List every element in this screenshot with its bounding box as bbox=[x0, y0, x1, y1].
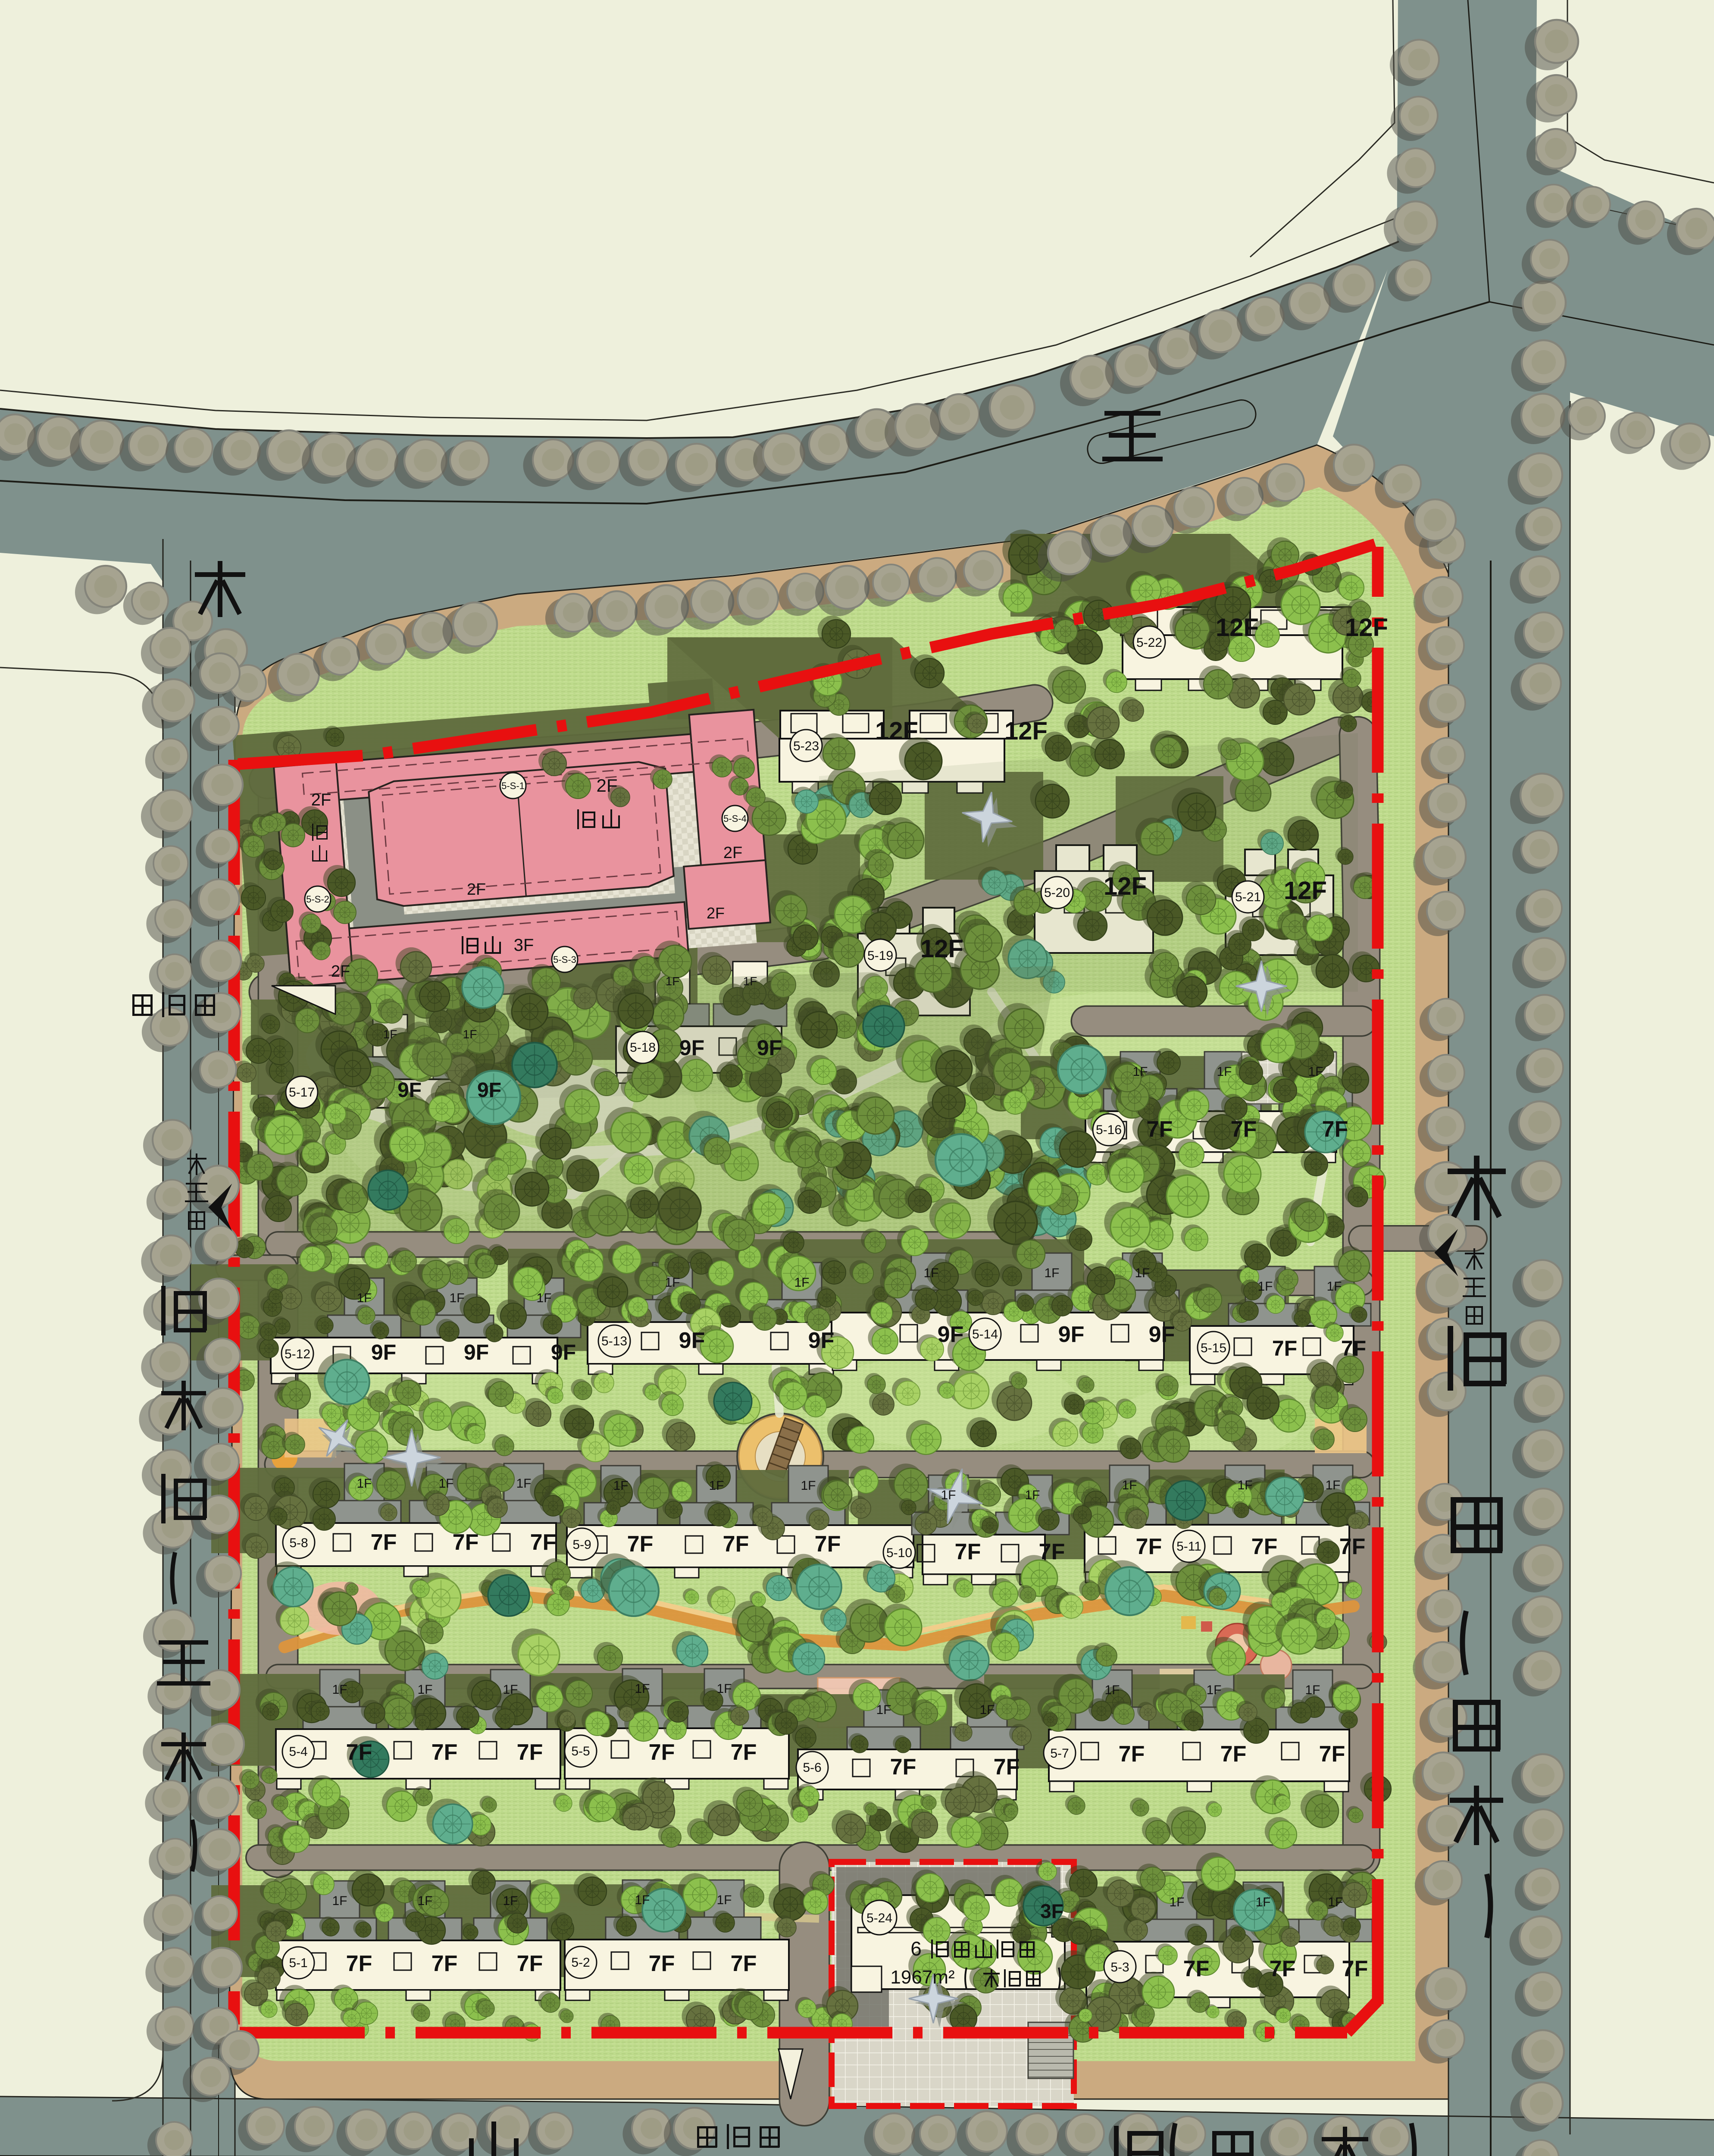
svg-text:7F: 7F bbox=[432, 1951, 458, 1976]
svg-text:12F: 12F bbox=[1345, 614, 1388, 642]
svg-text:1F: 1F bbox=[794, 1275, 809, 1290]
svg-text:1F: 1F bbox=[503, 1894, 518, 1908]
svg-text:5-7: 5-7 bbox=[1050, 1746, 1069, 1761]
svg-text:1967m²: 1967m² bbox=[890, 1967, 954, 1988]
svg-text:1F: 1F bbox=[383, 1028, 397, 1041]
svg-text:7F: 7F bbox=[1136, 1534, 1162, 1559]
svg-text:7F: 7F bbox=[1319, 1742, 1345, 1767]
svg-text:7F: 7F bbox=[649, 1951, 675, 1976]
svg-text:7F: 7F bbox=[994, 1755, 1020, 1780]
svg-text:12F: 12F bbox=[875, 717, 918, 745]
svg-text:12F: 12F bbox=[1104, 872, 1147, 900]
svg-text:5-18: 5-18 bbox=[630, 1040, 656, 1055]
svg-text:5-S-2: 5-S-2 bbox=[306, 894, 329, 905]
svg-text:9F: 9F bbox=[1058, 1322, 1085, 1347]
svg-text:7F: 7F bbox=[346, 1951, 372, 1976]
svg-text:2F: 2F bbox=[723, 844, 742, 862]
svg-text:5-2: 5-2 bbox=[571, 1955, 590, 1970]
svg-text:9F: 9F bbox=[371, 1340, 396, 1364]
svg-text:7F: 7F bbox=[1341, 1336, 1366, 1360]
svg-text:7F: 7F bbox=[1039, 1539, 1065, 1564]
svg-text:2F: 2F bbox=[467, 881, 486, 899]
svg-text:1F: 1F bbox=[801, 1479, 816, 1493]
svg-text:7F: 7F bbox=[815, 1532, 841, 1557]
svg-text:7F: 7F bbox=[1251, 1534, 1278, 1559]
svg-text:1F: 1F bbox=[516, 1476, 531, 1491]
svg-text:1F: 1F bbox=[665, 1275, 680, 1290]
svg-text:1F: 1F bbox=[1305, 1683, 1320, 1697]
svg-text:5-13: 5-13 bbox=[601, 1334, 627, 1348]
svg-text:1F: 1F bbox=[1255, 1895, 1270, 1909]
svg-text:9F: 9F bbox=[679, 1328, 705, 1353]
svg-text:2F: 2F bbox=[707, 904, 725, 922]
svg-text:7F: 7F bbox=[1339, 1534, 1366, 1559]
svg-text:7F: 7F bbox=[517, 1740, 543, 1765]
svg-text:7F: 7F bbox=[1119, 1742, 1145, 1767]
svg-text:1F: 1F bbox=[1326, 1279, 1342, 1294]
svg-text:1F: 1F bbox=[1135, 1266, 1150, 1280]
svg-text:1F: 1F bbox=[357, 1476, 372, 1491]
svg-text:1F: 1F bbox=[1169, 1895, 1184, 1909]
svg-text:5-17: 5-17 bbox=[289, 1085, 315, 1100]
svg-text:1F: 1F bbox=[503, 1683, 518, 1697]
svg-text:1F: 1F bbox=[1206, 1683, 1221, 1697]
svg-text:7F: 7F bbox=[1322, 1117, 1348, 1142]
svg-text:9F: 9F bbox=[477, 1079, 501, 1102]
svg-text:5-4: 5-4 bbox=[289, 1745, 307, 1759]
svg-text:3F: 3F bbox=[1040, 1900, 1063, 1922]
svg-text:5-S-3: 5-S-3 bbox=[553, 954, 576, 965]
svg-text:5-S-1: 5-S-1 bbox=[501, 780, 525, 791]
svg-text:1F: 1F bbox=[536, 1291, 551, 1305]
svg-text:9F: 9F bbox=[1149, 1322, 1175, 1347]
svg-text:5-5: 5-5 bbox=[571, 1744, 590, 1758]
svg-text:7F: 7F bbox=[1183, 1956, 1210, 1981]
svg-text:1F: 1F bbox=[1237, 1478, 1252, 1492]
svg-text:5-23: 5-23 bbox=[793, 739, 819, 753]
svg-text:1F: 1F bbox=[666, 975, 680, 988]
svg-text:1F: 1F bbox=[1257, 1279, 1273, 1294]
svg-text:1F: 1F bbox=[1217, 1065, 1232, 1079]
svg-text:5-19: 5-19 bbox=[867, 949, 893, 963]
svg-text:9F: 9F bbox=[464, 1340, 489, 1364]
svg-text:7F: 7F bbox=[731, 1951, 757, 1976]
svg-text:5-6: 5-6 bbox=[803, 1761, 821, 1775]
svg-text:1F: 1F bbox=[716, 1682, 732, 1696]
svg-text:1F: 1F bbox=[449, 1291, 464, 1305]
svg-text:7F: 7F bbox=[955, 1539, 981, 1564]
svg-text:7F: 7F bbox=[1342, 1956, 1368, 1981]
svg-text:1F: 1F bbox=[1325, 1478, 1340, 1492]
svg-text:9F: 9F bbox=[551, 1340, 576, 1364]
svg-text:1F: 1F bbox=[941, 1488, 956, 1502]
svg-text:5-10: 5-10 bbox=[886, 1546, 912, 1560]
svg-text:7F: 7F bbox=[731, 1740, 757, 1765]
svg-text:1F: 1F bbox=[417, 1894, 432, 1908]
svg-text:1F: 1F bbox=[438, 1476, 454, 1491]
svg-text:9F: 9F bbox=[679, 1036, 704, 1060]
svg-text:7F: 7F bbox=[649, 1740, 675, 1765]
svg-text:1F: 1F bbox=[332, 1894, 347, 1908]
svg-text:1F: 1F bbox=[743, 975, 757, 988]
svg-text:5-16: 5-16 bbox=[1096, 1123, 1122, 1137]
svg-text:7F: 7F bbox=[432, 1740, 458, 1765]
svg-text:7F: 7F bbox=[1231, 1117, 1257, 1142]
svg-text:7F: 7F bbox=[346, 1740, 372, 1765]
svg-text:1F: 1F bbox=[1025, 1488, 1040, 1502]
svg-text:5-1: 5-1 bbox=[289, 1956, 307, 1970]
svg-text:5-21: 5-21 bbox=[1235, 890, 1261, 904]
svg-text:2F: 2F bbox=[596, 775, 617, 796]
svg-text:1F: 1F bbox=[613, 1479, 628, 1493]
svg-text:1F: 1F bbox=[463, 1028, 477, 1041]
svg-text:5-24: 5-24 bbox=[866, 1911, 892, 1925]
svg-text:5-S-4: 5-S-4 bbox=[723, 813, 747, 824]
svg-text:2F: 2F bbox=[331, 962, 350, 981]
svg-text:7F: 7F bbox=[1147, 1117, 1173, 1142]
svg-text:5-11: 5-11 bbox=[1176, 1539, 1201, 1554]
svg-text:5-14: 5-14 bbox=[972, 1327, 998, 1341]
svg-text:9F: 9F bbox=[757, 1036, 782, 1060]
svg-text:9F: 9F bbox=[397, 1079, 422, 1102]
svg-text:5-8: 5-8 bbox=[289, 1536, 308, 1550]
svg-text:7F: 7F bbox=[530, 1530, 557, 1555]
svg-text:1F: 1F bbox=[716, 1893, 732, 1907]
svg-text:1F: 1F bbox=[709, 1479, 724, 1493]
svg-text:5-12: 5-12 bbox=[285, 1347, 310, 1361]
svg-text:5-3: 5-3 bbox=[1110, 1960, 1129, 1974]
svg-text:1F: 1F bbox=[876, 1703, 891, 1717]
svg-text:7F: 7F bbox=[1272, 1336, 1297, 1360]
svg-text:7F: 7F bbox=[453, 1530, 479, 1555]
svg-text:1F: 1F bbox=[1122, 1478, 1137, 1492]
svg-text:1F: 1F bbox=[1132, 1065, 1148, 1079]
svg-text:5-22: 5-22 bbox=[1136, 636, 1162, 650]
svg-text:1F: 1F bbox=[923, 1266, 938, 1280]
svg-text:7F: 7F bbox=[1270, 1956, 1296, 1981]
svg-text:1F: 1F bbox=[1328, 1895, 1343, 1909]
svg-text:12F: 12F bbox=[920, 935, 963, 963]
svg-text:5-9: 5-9 bbox=[572, 1538, 591, 1552]
svg-text:2F: 2F bbox=[311, 790, 332, 809]
svg-text:7F: 7F bbox=[371, 1530, 397, 1555]
svg-text:7F: 7F bbox=[517, 1951, 543, 1976]
svg-text:1F: 1F bbox=[1104, 1683, 1120, 1697]
svg-text:5-15: 5-15 bbox=[1201, 1341, 1226, 1355]
svg-text:1F: 1F bbox=[635, 1893, 650, 1907]
svg-text:7F: 7F bbox=[627, 1532, 654, 1557]
svg-text:7F: 7F bbox=[890, 1755, 916, 1780]
svg-text:9F: 9F bbox=[938, 1322, 964, 1347]
svg-text:1F: 1F bbox=[1308, 1065, 1323, 1079]
svg-text:7F: 7F bbox=[1220, 1742, 1247, 1767]
svg-text:1F: 1F bbox=[1044, 1266, 1059, 1280]
svg-text:1F: 1F bbox=[635, 1682, 650, 1696]
svg-text:7F: 7F bbox=[723, 1532, 749, 1557]
svg-text:3F: 3F bbox=[514, 936, 534, 955]
svg-text:1F: 1F bbox=[357, 1291, 372, 1305]
svg-text:5-20: 5-20 bbox=[1044, 886, 1070, 900]
svg-text:6: 6 bbox=[910, 1937, 922, 1960]
svg-text:12F: 12F bbox=[1004, 717, 1048, 745]
svg-text:12F: 12F bbox=[1216, 614, 1259, 642]
svg-text:12F: 12F bbox=[1284, 877, 1327, 905]
svg-text:1F: 1F bbox=[332, 1683, 347, 1697]
svg-text:9F: 9F bbox=[808, 1328, 835, 1353]
svg-text:1F: 1F bbox=[417, 1683, 432, 1697]
svg-text:1F: 1F bbox=[979, 1703, 995, 1717]
